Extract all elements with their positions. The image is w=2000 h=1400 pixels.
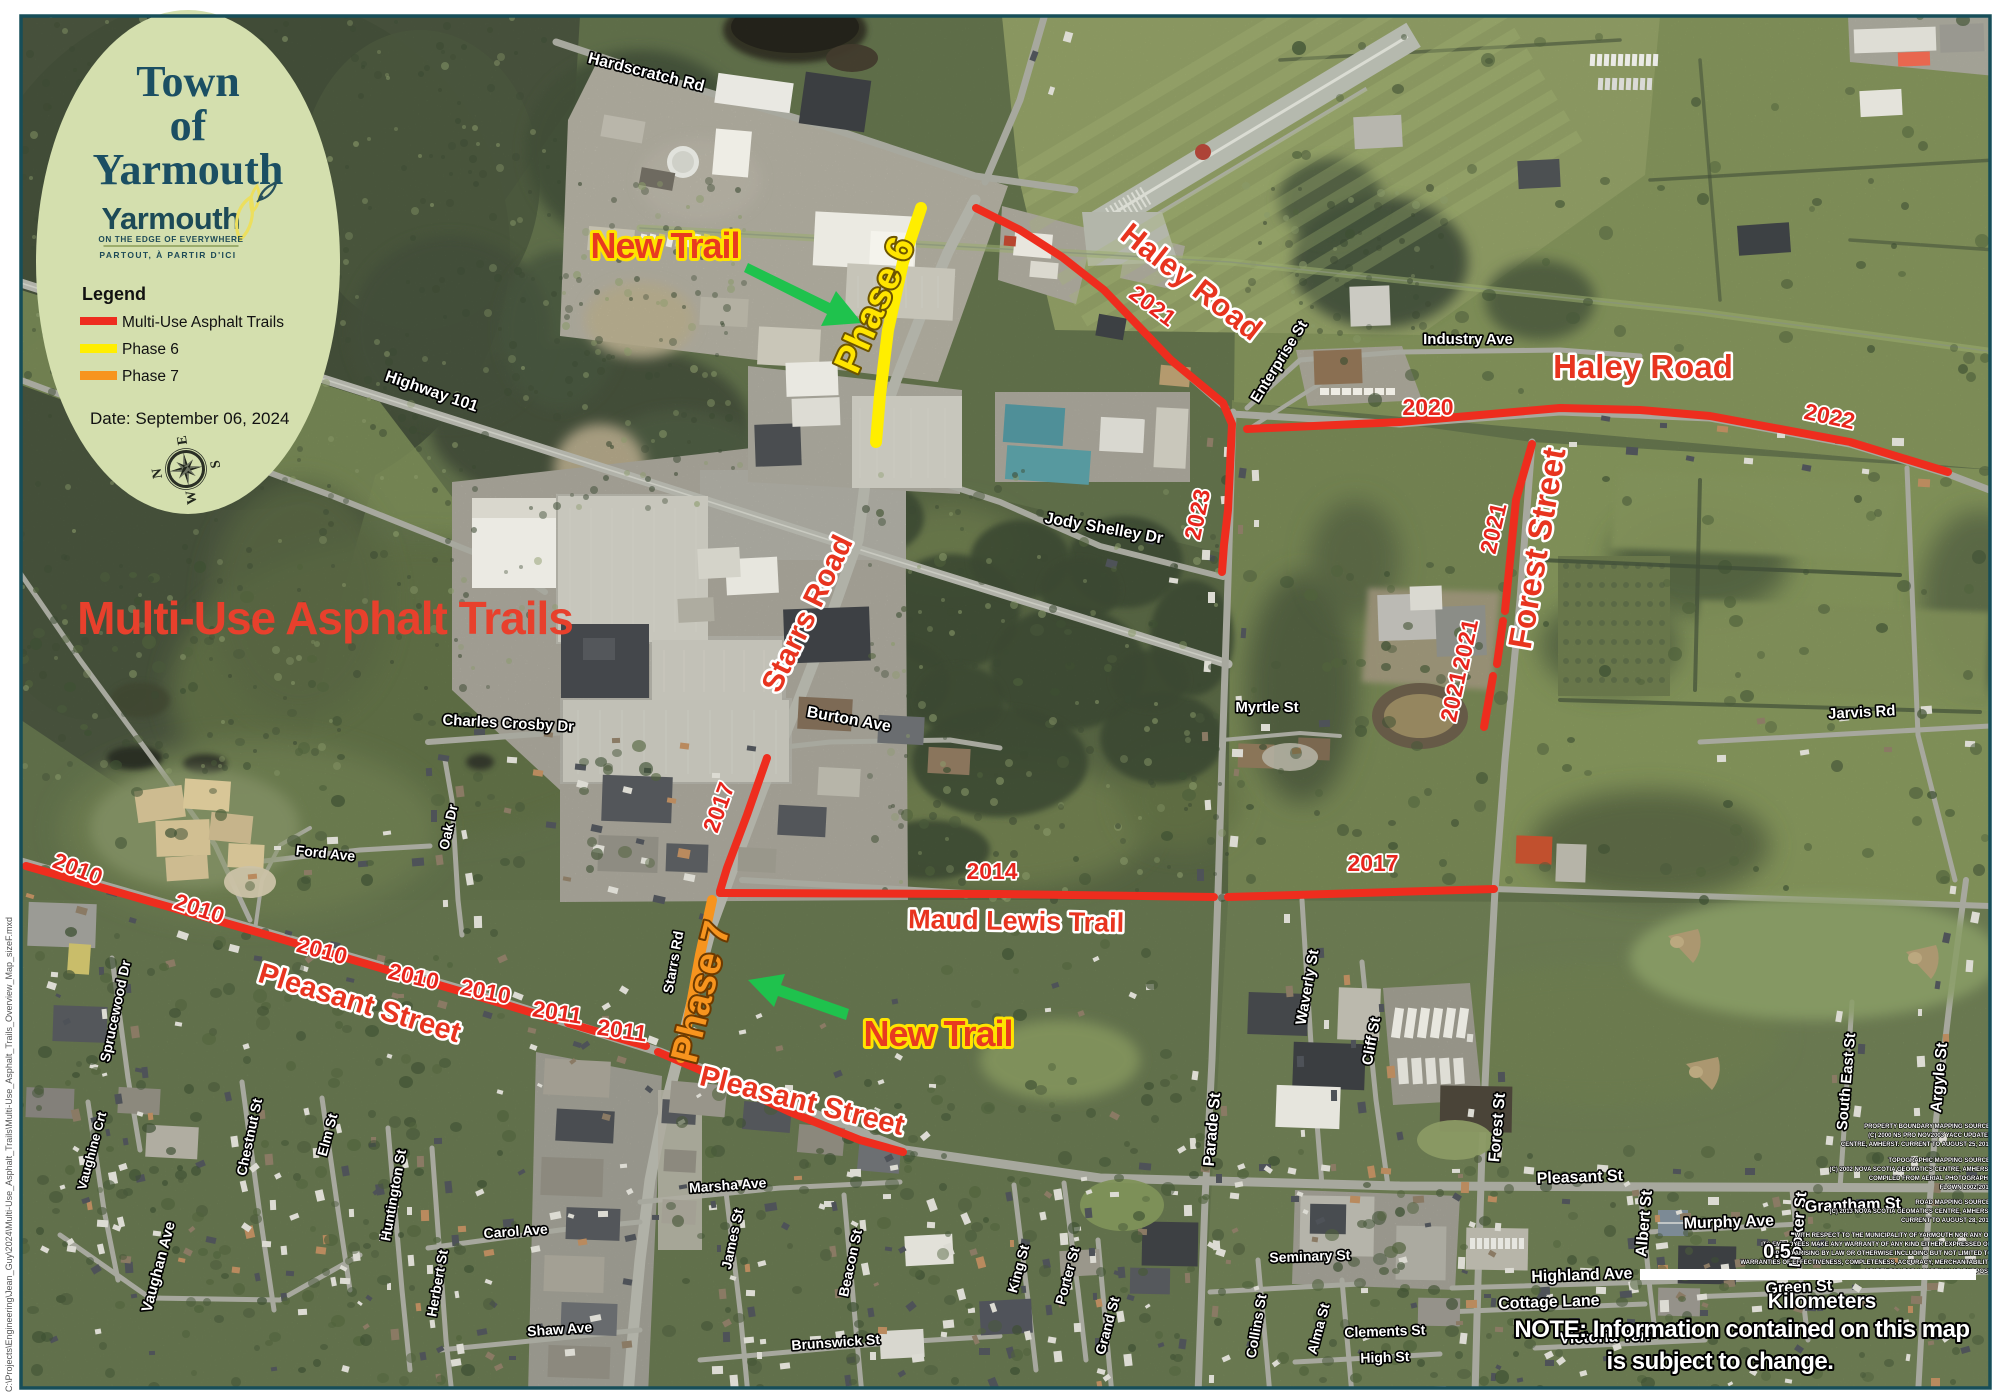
svg-text:Kilometers: Kilometers bbox=[1768, 1290, 1877, 1313]
svg-text:Murphy Ave: Murphy Ave bbox=[1683, 1212, 1774, 1232]
svg-text:FLOWN 2002-2013: FLOWN 2002-2013 bbox=[1940, 1185, 1993, 1191]
svg-text:WITH RESPECT TO THE MUNICIPALI: WITH RESPECT TO THE MUNICIPALITY OF YARM… bbox=[1795, 1233, 1993, 1239]
svg-text:Town: Town bbox=[136, 57, 240, 106]
svg-text:Phase 7: Phase 7 bbox=[122, 368, 179, 385]
svg-text:Haley Road: Haley Road bbox=[1553, 348, 1733, 385]
svg-text:C:\Projects\Engineering\Jean_G: C:\Projects\Engineering\Jean_Guy\2024\Mu… bbox=[4, 917, 14, 1392]
svg-text:TOPOGRAPHIC MAPPING SOURCE:: TOPOGRAPHIC MAPPING SOURCE: bbox=[1888, 1158, 1992, 1164]
svg-text:(C) 2013 NOVA SCOTIA GEOMATICS: (C) 2013 NOVA SCOTIA GEOMATICS CENTRE, A… bbox=[1830, 1209, 1993, 1215]
svg-text:2020: 2020 bbox=[1402, 394, 1453, 420]
svg-text:Multi-Use Asphalt Trails: Multi-Use Asphalt Trails bbox=[122, 314, 284, 331]
svg-text:New Trail: New Trail bbox=[863, 1013, 1012, 1054]
svg-text:of: of bbox=[170, 101, 208, 150]
svg-text:Jarvis Rd: Jarvis Rd bbox=[1828, 702, 1896, 723]
svg-text:CURRENT TO AUGUST 28, 2014: CURRENT TO AUGUST 28, 2014 bbox=[1901, 1218, 1993, 1224]
svg-text:PARTOUT, À PARTIR D'ICI: PARTOUT, À PARTIR D'ICI bbox=[99, 250, 236, 260]
svg-text:ON THE EDGE OF EVERYWHERE: ON THE EDGE OF EVERYWHERE bbox=[98, 235, 243, 244]
svg-text:Highland Ave: Highland Ave bbox=[1531, 1265, 1633, 1286]
svg-text:Maud Lewis Trail: Maud Lewis Trail bbox=[908, 904, 1125, 938]
svg-text:IMPLIED ARISING BY LAW OR OTHE: IMPLIED ARISING BY LAW OR OTHERWISE INCL… bbox=[1769, 1251, 1992, 1257]
svg-text:Myrtle St: Myrtle St bbox=[1235, 699, 1298, 716]
svg-text:New Trail: New Trail bbox=[590, 225, 739, 266]
svg-text:COMPILED FROM AERIAL PHOTOGRAP: COMPILED FROM AERIAL PHOTOGRAPHY bbox=[1869, 1176, 1992, 1182]
svg-text:Multi-Use Asphalt Trails: Multi-Use Asphalt Trails bbox=[77, 592, 573, 644]
svg-text:is subject to change.: is subject to change. bbox=[1607, 1348, 1834, 1375]
svg-text:0.5: 0.5 bbox=[1763, 1241, 1791, 1263]
svg-text:Industry Ave: Industry Ave bbox=[1423, 331, 1513, 348]
svg-text:Seminary St: Seminary St bbox=[1269, 1247, 1351, 1266]
svg-text:(C) 2000 NS PRO NOV2003 YACC U: (C) 2000 NS PRO NOV2003 YACC UPDATES bbox=[1868, 1133, 1992, 1139]
svg-text:2014: 2014 bbox=[966, 858, 1017, 884]
svg-text:Clements St: Clements St bbox=[1344, 1322, 1426, 1341]
svg-text:Legend: Legend bbox=[82, 284, 146, 304]
svg-text:ITS EMPLOYEES MAKE ANY WARRANT: ITS EMPLOYEES MAKE ANY WARRANTY OF ANY K… bbox=[1761, 1242, 1993, 1248]
svg-text:ROAD MAPPING SOURCE:: ROAD MAPPING SOURCE: bbox=[1915, 1200, 1992, 1206]
svg-text:Yarmouth: Yarmouth bbox=[102, 201, 241, 236]
svg-text:2017: 2017 bbox=[1347, 850, 1398, 876]
svg-text:Cottage Lane: Cottage Lane bbox=[1498, 1292, 1600, 1313]
svg-text:Phase 6: Phase 6 bbox=[122, 341, 179, 358]
svg-text:Pleasant St: Pleasant St bbox=[1536, 1167, 1623, 1187]
svg-text:High St: High St bbox=[1360, 1348, 1410, 1366]
svg-text:Date: September 06, 2024: Date: September 06, 2024 bbox=[90, 409, 289, 428]
svg-text:NOTE: Information contained o: NOTE: Information contained on this map bbox=[1514, 1316, 1969, 1343]
svg-text:PROPERTY BOUNDARY MAPPING SOUR: PROPERTY BOUNDARY MAPPING SOURCE: bbox=[1864, 1124, 1992, 1130]
svg-text:(C) 2002 NOVA SCOTIA GEOMATICS: (C) 2002 NOVA SCOTIA GEOMATICS CENTRE, A… bbox=[1830, 1167, 1993, 1173]
svg-text:CENTRE, AMHERST. CURRENT TO A: CENTRE, AMHERST. CURRENT TO AUGUST 25, 2… bbox=[1841, 1142, 1993, 1148]
svg-text:W: W bbox=[184, 489, 201, 505]
